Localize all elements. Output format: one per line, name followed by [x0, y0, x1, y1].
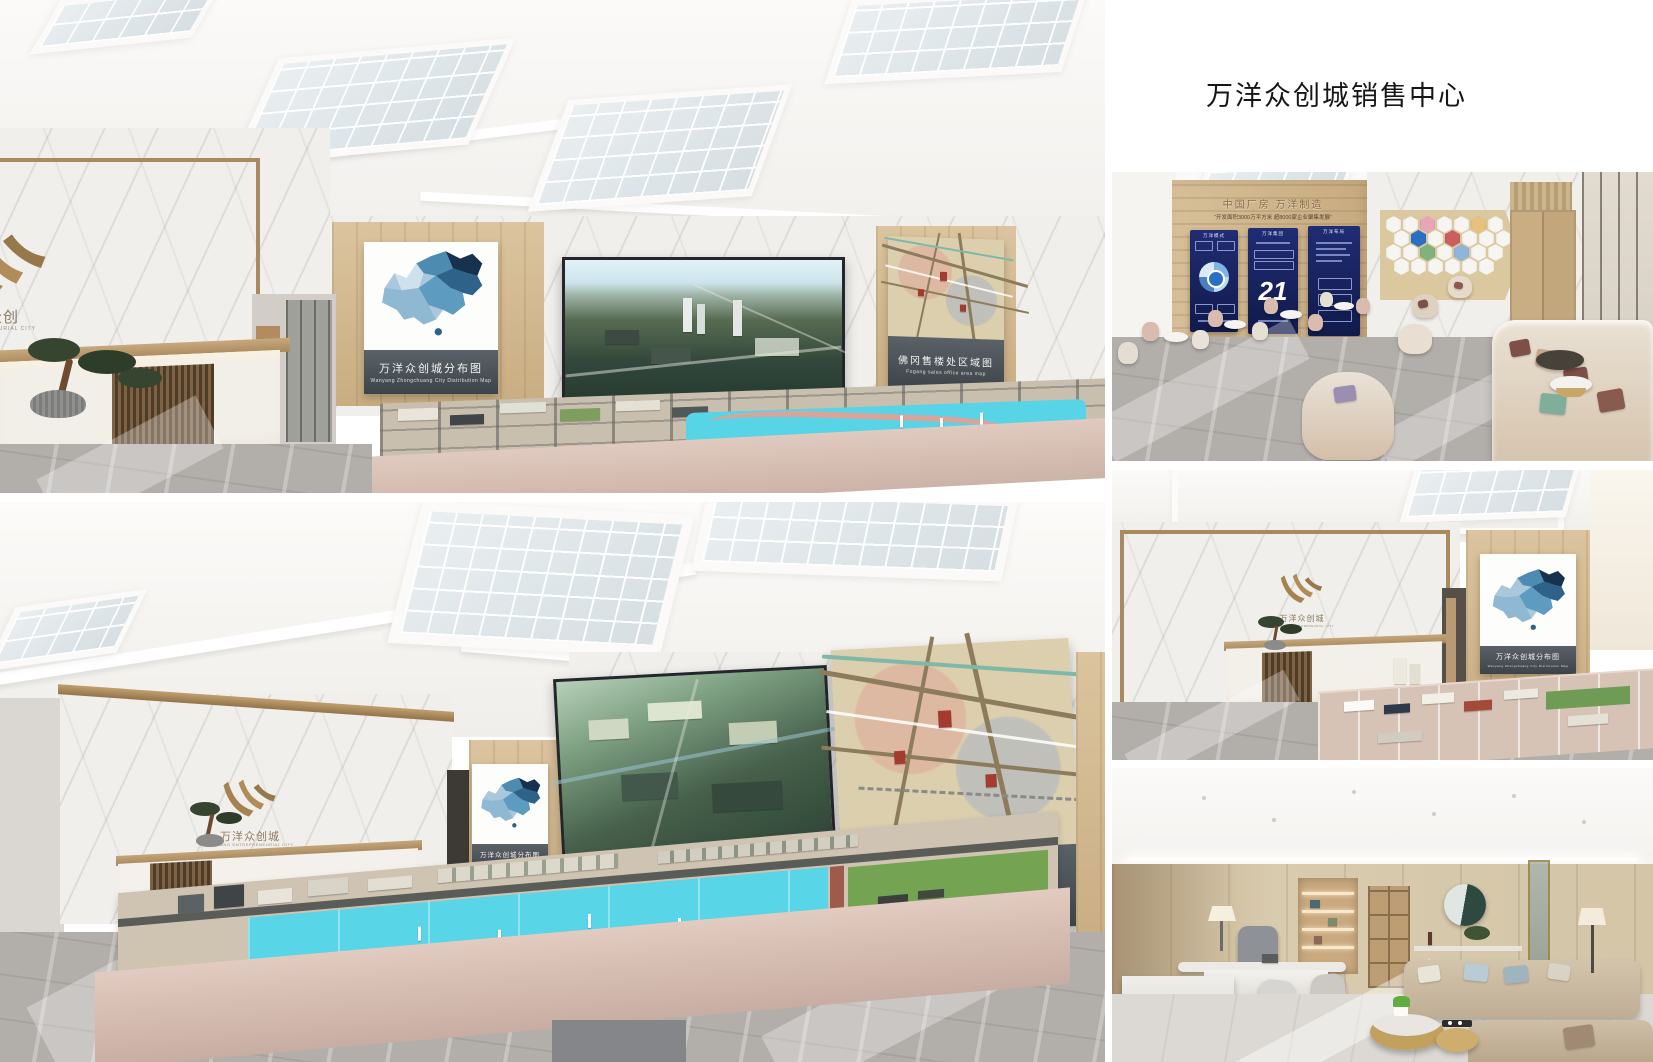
tea-cup [1458, 1021, 1462, 1025]
chair [1142, 322, 1159, 341]
downlight [1352, 790, 1356, 794]
chair [1118, 342, 1138, 364]
chair [1320, 292, 1333, 307]
caption-zh: 万洋众创城分布图 [364, 360, 498, 376]
china-map [472, 764, 548, 844]
poster-title: 万洋布局 [1308, 229, 1360, 235]
console-table [1414, 946, 1522, 951]
render-lounge-area: 中国厂房 万洋制造 “开发面积3000万平方米 超8000家企业聚集发展” 万洋… [1112, 172, 1653, 461]
console-bonsai [1464, 926, 1490, 940]
glass-partition [286, 300, 332, 442]
poster-title: 万洋集团 [1248, 231, 1298, 237]
distribution-map-caption: 万洋众创城分布图 Wanyang Zhongchuang City Distri… [364, 350, 498, 394]
pillow [1596, 388, 1625, 413]
pillow [1563, 1024, 1596, 1050]
floor-lamp-pole [1591, 925, 1594, 973]
pillow [1547, 963, 1571, 982]
round-table [1224, 320, 1246, 329]
bonsai-pot [196, 834, 224, 847]
bonsai-foliage [28, 338, 80, 362]
double-door [1510, 210, 1576, 336]
downlight [1582, 820, 1586, 824]
side-wall [0, 698, 64, 948]
floor-lamp [1578, 908, 1606, 925]
display-shelf-lit [1298, 878, 1358, 974]
chair [1252, 322, 1268, 340]
area-map-panel: 佛冈售楼处区域图 Fogang sales office area map [888, 236, 1004, 392]
window-light [1590, 470, 1653, 650]
render-reception-hall: 万洋众创城 WANYANG ENTREPRENEURIAL CITY 万洋众创城… [1112, 470, 1653, 760]
round-table [1280, 310, 1302, 319]
skylight [387, 502, 694, 657]
lounge-armchair [1398, 324, 1432, 354]
brand-logo-en: WANYANG ENTREPRENEURIAL CITY [0, 326, 78, 332]
bonsai-foliage [118, 368, 162, 388]
desk-lamp [1208, 906, 1236, 921]
brand-logo-icon [0, 222, 50, 314]
hex-row [1394, 258, 1494, 275]
wood-pillar [1076, 652, 1105, 952]
chair [1264, 298, 1278, 314]
bonsai-pot [30, 390, 86, 418]
tea-tray [1442, 1020, 1472, 1027]
caption-en: Fogang sales office area map [888, 367, 1004, 377]
skylight [824, 0, 1088, 84]
round-table [1334, 302, 1354, 310]
double-door-transom [1510, 182, 1572, 210]
area-map [888, 236, 1004, 340]
skylight [1399, 470, 1582, 523]
collage-canvas: 万洋众创城销售中心 [0, 0, 1653, 1062]
plant-grass [1393, 996, 1410, 1007]
downlight [1272, 818, 1276, 822]
caption-zh: 万洋众创城分布图 [1480, 652, 1576, 662]
screen-tower [697, 304, 705, 334]
gold-side-table [1436, 1028, 1478, 1052]
caption-en: Wanyang Zhongchuang City Distribution Ma… [364, 378, 498, 384]
bonsai-foliage [216, 812, 242, 824]
slogan-headline: 中国厂房 万洋制造 [1192, 196, 1354, 211]
chair [1308, 314, 1323, 331]
distribution-map-caption: 万洋众创城分布图 Wanyang Zhongchuang City Distri… [1480, 646, 1576, 674]
round-table [1164, 332, 1188, 342]
skylight [528, 84, 793, 212]
model-tower [1394, 658, 1406, 684]
pillow [1463, 963, 1489, 982]
poster-title: 万洋模式 [1190, 233, 1238, 239]
pillow [1333, 385, 1357, 404]
sofa [1468, 1020, 1653, 1062]
china-map [1480, 554, 1576, 646]
poster-cycle-center [1207, 270, 1225, 288]
downlight [1202, 796, 1206, 800]
slogan-subline: “开发面积3000万平方米 超8000家企业聚集发展” [1182, 213, 1364, 221]
bonsai-pot [1264, 640, 1286, 650]
desk-lamp-stem [1220, 921, 1223, 951]
screen-road [566, 346, 842, 378]
downlight [1432, 812, 1436, 816]
chair [1356, 298, 1370, 314]
pillow [1417, 965, 1441, 984]
hall-floor [0, 444, 372, 493]
china-map [364, 242, 498, 350]
brand-logo-icon [1278, 572, 1324, 610]
chair [1192, 330, 1209, 349]
render-exhibition-hall-model: 万洋众创城 WANYANG ENTREPRENEURIAL CITY [0, 502, 1105, 1062]
caption-zh: 佛冈售楼处区域图 [888, 350, 1004, 369]
pillow [1453, 281, 1463, 289]
distribution-map-panel: 万洋众创城分布图 Wanyang Zhongchuang City Distri… [364, 242, 498, 394]
render-executive-office [1112, 768, 1653, 1062]
screen-building [605, 330, 639, 344]
screen-tower [683, 298, 692, 332]
round-mirror [1444, 884, 1486, 926]
gold-coffee-table [1370, 1014, 1444, 1050]
page-title: 万洋众创城销售中心 [1066, 74, 1607, 113]
coffee-table-dark [1536, 350, 1584, 370]
pillow [1503, 965, 1529, 984]
ottoman-gold-base [1556, 388, 1586, 397]
plant-pot [1394, 1006, 1408, 1016]
wine-bottle [1428, 932, 1432, 945]
tea-cup [1448, 1021, 1452, 1025]
title-band: 万洋众创城销售中心 [1112, 0, 1653, 170]
led-screen-aerial-city [562, 257, 845, 405]
model-tower [1410, 664, 1420, 684]
chair [1208, 310, 1223, 327]
laptop [1262, 954, 1278, 963]
skylight [691, 502, 1019, 581]
pillow [1509, 338, 1531, 357]
model-table-leg [552, 1020, 686, 1062]
downlight [1512, 794, 1516, 798]
caption-en: Wanyang Zhongchuang City Distribution Ma… [1480, 664, 1576, 668]
render-exhibition-hall-main: 万洋众创城分布图 Wanyang Zhongchuang City Distri… [0, 0, 1105, 493]
bonsai-foliage [190, 802, 220, 816]
distribution-map-panel: 万洋众创城分布图 Wanyang Zhongchuang City Distri… [1480, 554, 1576, 674]
bonsai-foliage [1280, 624, 1302, 634]
corridor-door [1446, 598, 1456, 694]
